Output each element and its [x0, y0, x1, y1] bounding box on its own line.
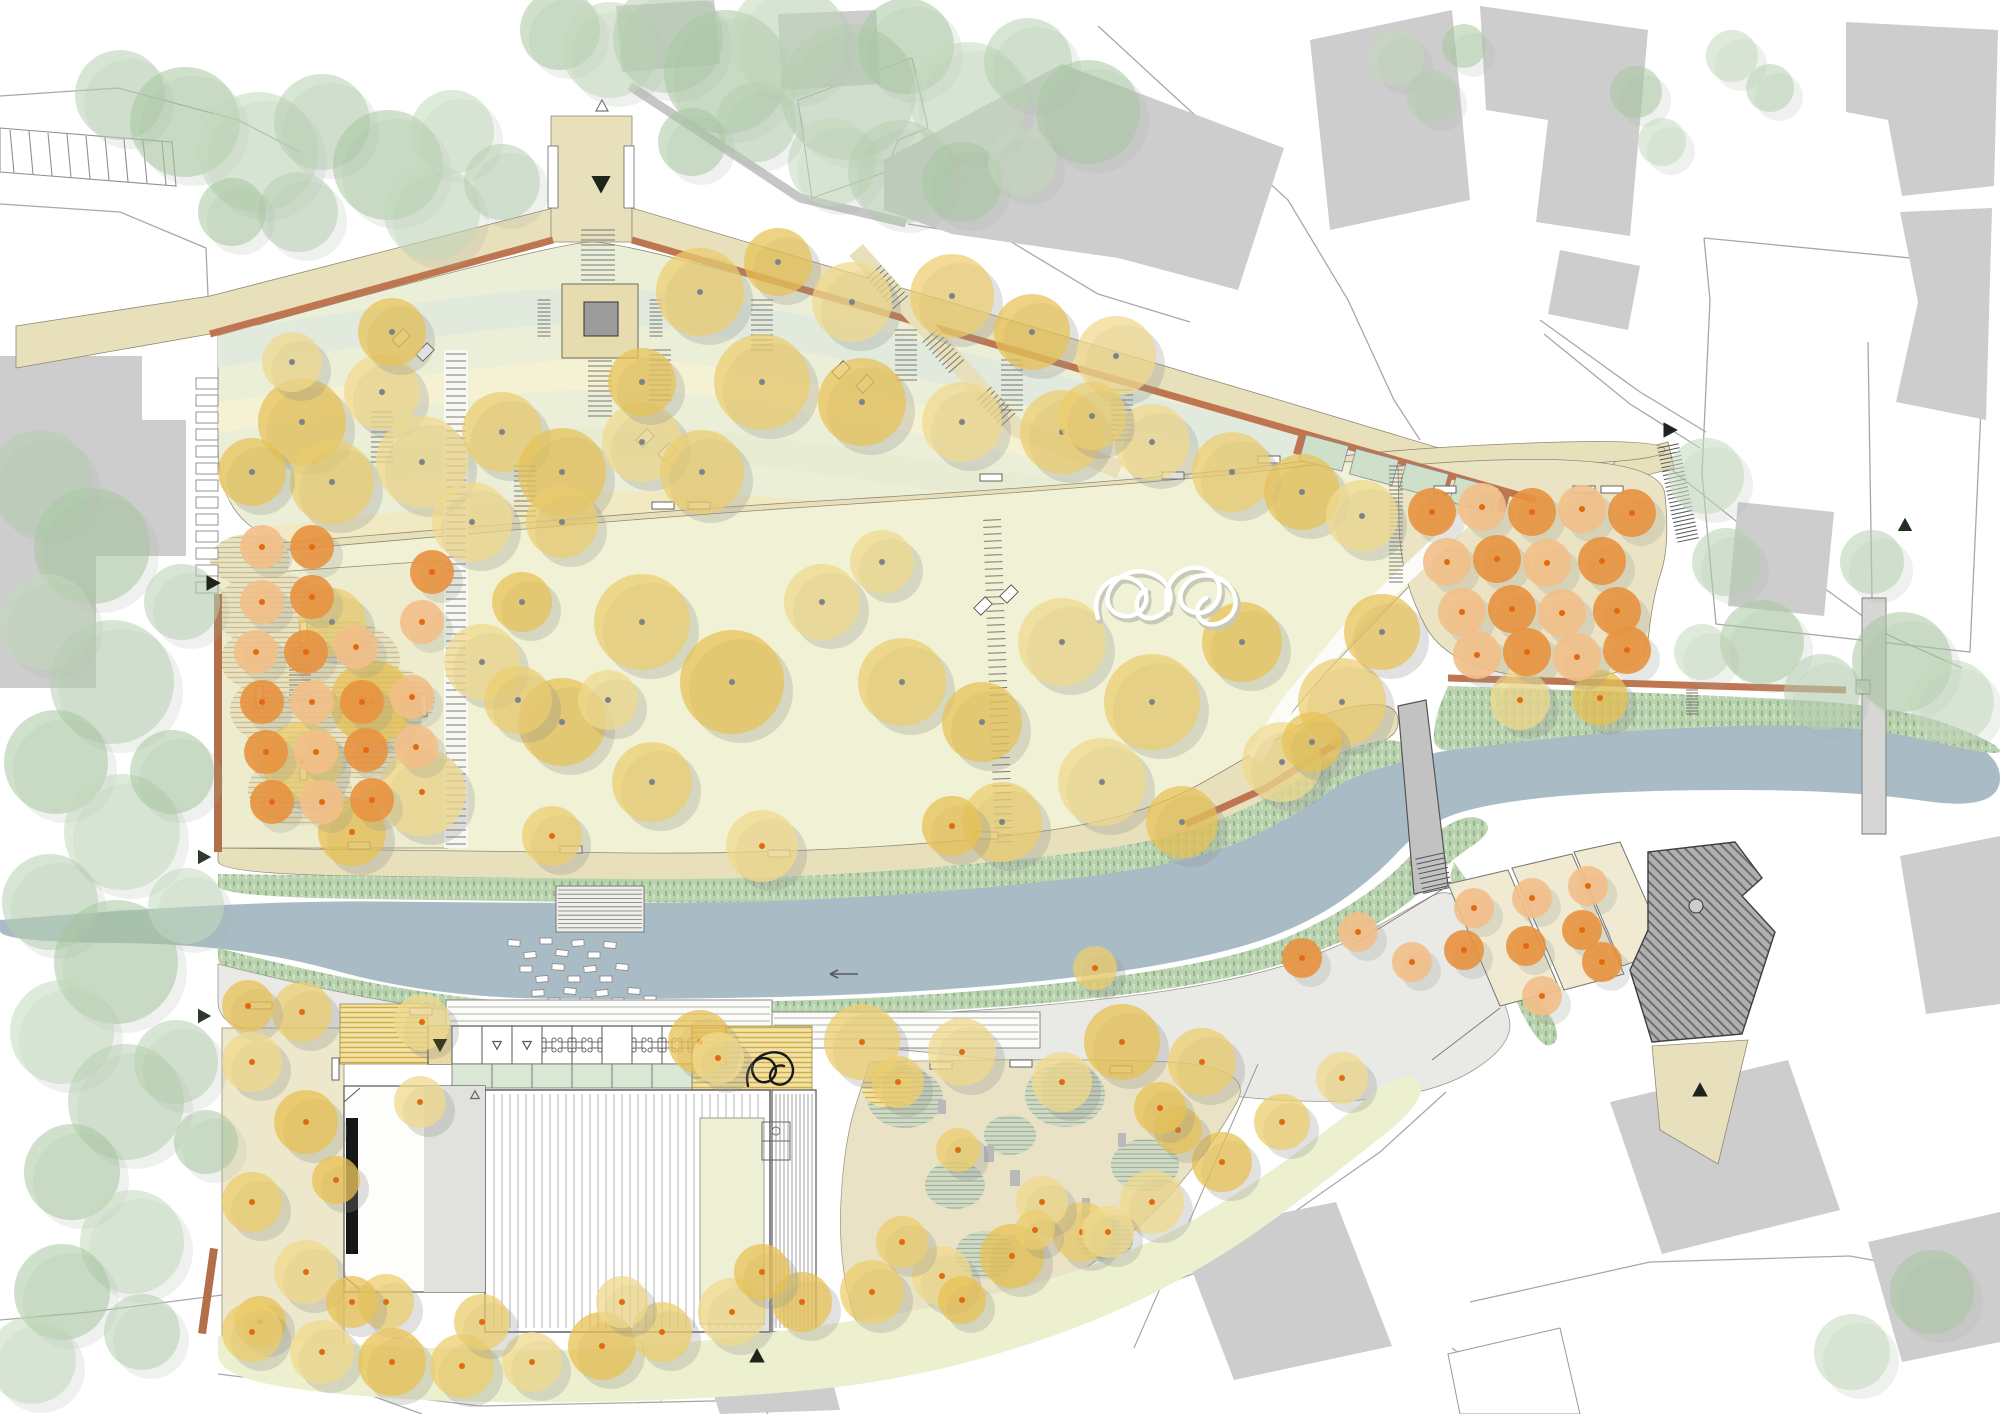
plan-canvas — [0, 0, 2000, 1414]
entrance-marker-west-mid — [198, 850, 211, 864]
mill-building — [1630, 842, 1775, 1042]
site-plan — [0, 0, 2000, 1414]
mill-vent — [1689, 899, 1703, 913]
weir — [556, 886, 644, 932]
veranda-cells — [452, 1064, 692, 1088]
viewing-platform-core — [584, 302, 618, 336]
entrance-marker-northeast — [1664, 422, 1678, 438]
entrance-marker-west-lower — [198, 1009, 211, 1023]
entrance-marker-east — [1898, 518, 1912, 531]
